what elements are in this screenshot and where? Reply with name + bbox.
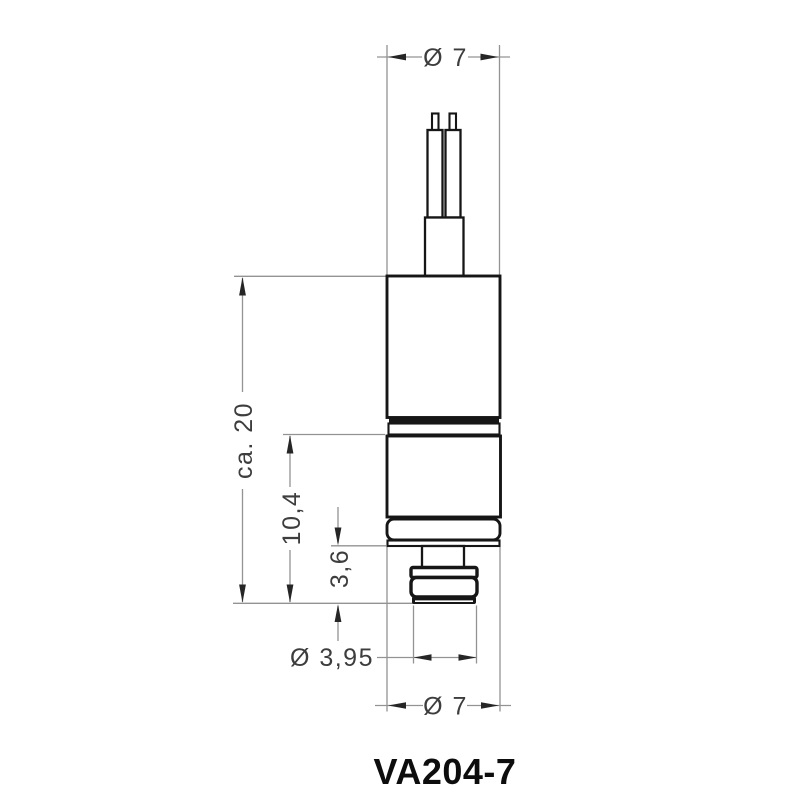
tip-seal-band [412,597,476,605]
label-overall-length: ca. 20 [230,402,258,479]
arrowhead-up-icon [287,435,294,454]
pin-left [432,114,439,132]
drawing-svg: Ø 7 ca. 20 10,4 3,6 Ø 3,95 Ø 7 VA204-7 [0,0,802,802]
arrowhead-down-icon [335,528,342,546]
tip-body [411,578,477,598]
arrowhead-up-icon [239,277,246,296]
arrowhead-down-icon [287,585,294,603]
label-tip-diameter: Ø 3,95 [290,644,374,672]
stem [422,546,464,568]
arrowhead-right-icon [481,54,499,61]
flange [387,519,500,540]
arrowhead-left-icon [388,702,406,709]
arrowhead-up-icon [335,604,342,622]
drawing-title: VA204-7 [374,751,517,792]
groove-ring [389,418,499,423]
label-top-diameter: Ø 7 [423,44,468,72]
arrowhead-right-icon [459,654,477,661]
neck [425,218,464,277]
arrowhead-left-icon [414,654,432,661]
lower-body [387,436,501,517]
wire-left [428,130,443,218]
arrowhead-right-icon [481,702,499,709]
arrowhead-left-icon [388,54,406,61]
arrowhead-down-icon [239,585,246,603]
label-lower-length: 10,4 [278,491,306,546]
label-body-diameter: Ø 7 [423,693,468,721]
component-outline [387,114,501,605]
label-tip-length: 3,6 [326,549,354,588]
upper-body [387,276,500,418]
technical-drawing: Ø 7 ca. 20 10,4 3,6 Ø 3,95 Ø 7 VA204-7 [0,0,802,802]
collar-band [389,424,500,435]
dim-tip-diameter [377,606,477,664]
pin-right [450,114,457,132]
wire-right [446,130,461,218]
